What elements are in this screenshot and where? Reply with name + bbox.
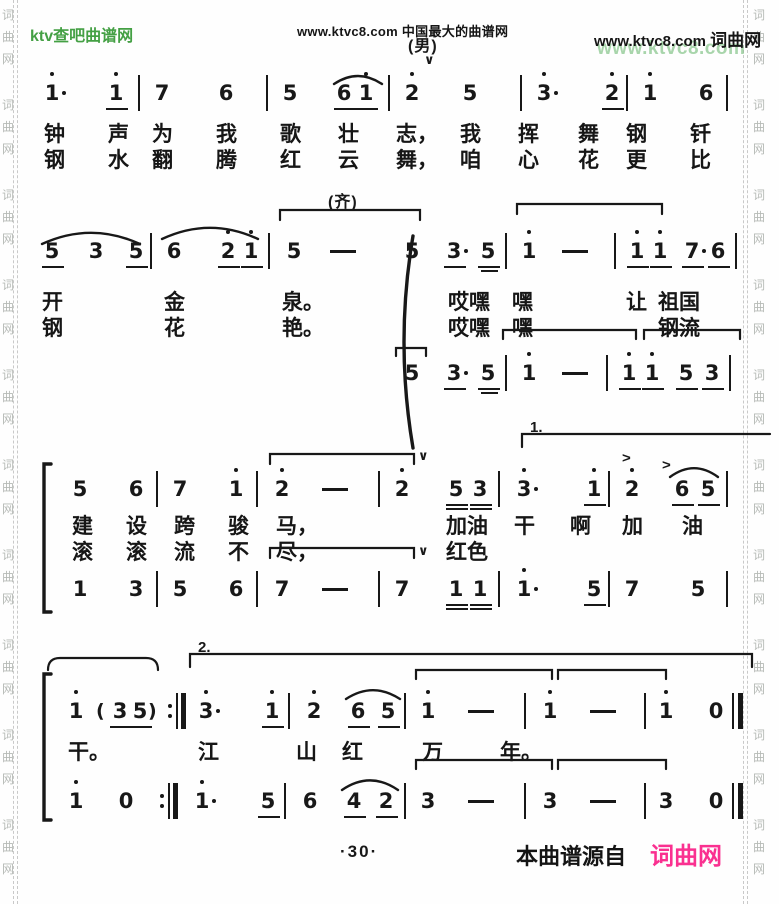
volta-bracket xyxy=(190,654,752,667)
divisi-brace xyxy=(404,236,413,448)
tie-bracket xyxy=(396,348,426,356)
tie-bracket xyxy=(416,670,552,679)
sheet-music-page: 词曲网词曲网词曲网词曲网词曲网词曲网词曲网词曲网词曲网词曲网 词曲网词曲网词曲网… xyxy=(0,0,779,904)
slur xyxy=(670,468,718,477)
phrase-bracket xyxy=(48,658,158,670)
tie-bracket xyxy=(644,330,740,339)
tie-bracket xyxy=(270,548,414,558)
slur xyxy=(346,690,400,699)
tie-bracket xyxy=(270,454,414,464)
header-right-sitename: 词曲网 xyxy=(710,31,761,50)
tie-bracket xyxy=(503,330,636,339)
tie-bracket xyxy=(280,210,420,220)
score-graphics-overlay xyxy=(0,0,779,904)
system-bracket xyxy=(44,674,51,820)
header-right-url: www.ktvc8.com xyxy=(594,33,706,50)
tie-bracket xyxy=(558,760,666,769)
header-right-site[interactable]: www.ktvc8.com 词曲网 xyxy=(594,26,761,51)
system-bracket xyxy=(44,464,51,612)
tie-bracket xyxy=(558,670,666,679)
tie-bracket xyxy=(416,760,552,769)
slur xyxy=(162,228,258,239)
slur xyxy=(42,233,140,244)
slur xyxy=(342,780,398,790)
volta-bracket xyxy=(522,434,770,447)
slur xyxy=(334,76,382,84)
tie-bracket xyxy=(517,204,662,214)
